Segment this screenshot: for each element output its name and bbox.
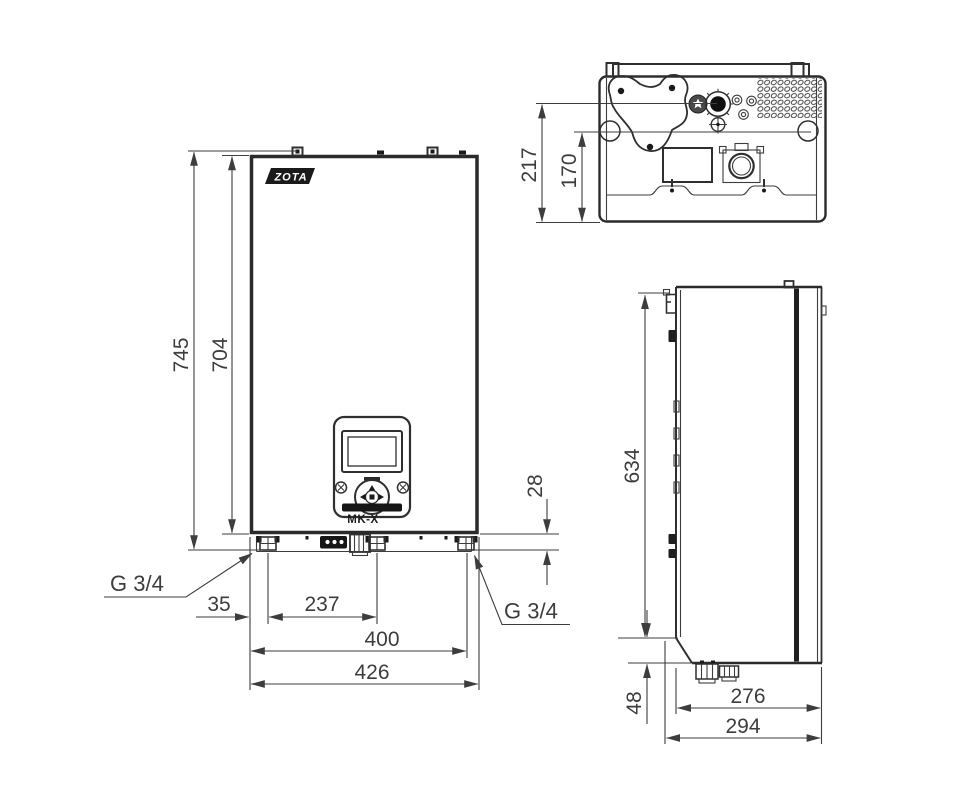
dim-top-depth-to-fasteners: 170	[558, 153, 581, 188]
dpad-up-arrow-icon	[369, 485, 375, 491]
dim-side-overall-depth: 294	[725, 715, 760, 738]
gasket-screw-dot	[618, 88, 624, 94]
dim-front-edge-to-right-connection: 400	[364, 628, 399, 651]
boiler-body-top	[600, 63, 826, 222]
knurled-fastener-right	[798, 121, 818, 141]
front-casing	[252, 157, 478, 533]
dim-front-edge-to-left-connection: 35	[207, 593, 230, 616]
dim-front-overall-height: 745	[170, 337, 193, 372]
dim-side-body-depth: 276	[730, 685, 765, 708]
boiler-body-side	[664, 281, 827, 683]
pipe-fitting-center	[366, 536, 389, 550]
panel-bottom-bar	[342, 504, 402, 512]
brand-logo-text: ZOTA	[273, 172, 307, 184]
dim-front-body-height: 704	[209, 337, 232, 372]
technical-drawing-page: ZOTA	[0, 0, 970, 793]
gasket-screw-dot	[647, 144, 653, 150]
gasket-screw-dot	[669, 85, 675, 91]
small-boss-group	[732, 95, 756, 119]
rear-mounting-rail	[607, 63, 810, 77]
bottom-connection-strip	[257, 535, 478, 556]
top-mounting-tabs	[293, 148, 467, 156]
pipe-fitting-right	[455, 536, 478, 550]
pipe-fitting-left	[257, 536, 280, 550]
side-edge-clips	[669, 330, 680, 558]
crosshair-boss	[709, 116, 727, 134]
cable-terminal-block	[320, 536, 347, 549]
thread-label-right: G 3/4	[504, 599, 558, 624]
side-view: 634 48 276 294	[618, 281, 826, 744]
dim-front-connection-protrusion: 28	[524, 474, 547, 497]
round-connector	[720, 144, 764, 183]
left-screw-icon	[336, 482, 347, 493]
dim-side-height: 634	[621, 448, 644, 483]
dim-front-overall-width: 426	[354, 661, 389, 684]
right-screw-icon	[398, 482, 409, 493]
dim-top-depth-to-connections: 217	[518, 147, 541, 182]
top-view: 217 170	[518, 63, 826, 223]
thread-label-left: G 3/4	[110, 571, 164, 596]
vent-perforation-grid	[757, 78, 822, 118]
boiler-dimension-drawing: ZOTA	[0, 0, 970, 793]
boiler-body-front: ZOTA	[252, 148, 478, 556]
knurled-fastener-left	[600, 121, 620, 141]
terminal-cutout	[663, 148, 712, 182]
cover-plate-gasket	[609, 75, 688, 151]
control-panel	[334, 417, 410, 517]
dim-side-bottom-section: 48	[623, 691, 646, 714]
dpad-right-arrow-icon	[379, 494, 385, 500]
model-label: MK-X	[347, 514, 378, 526]
dpad-left-arrow-icon	[360, 494, 366, 500]
rear-panel-edge	[794, 289, 799, 662]
display-inner	[348, 437, 396, 466]
front-view: ZOTA	[104, 148, 570, 691]
dim-front-left-to-center-connection: 237	[304, 593, 339, 616]
top-dimensions: 217 170	[518, 104, 811, 223]
brand-logo: ZOTA	[265, 168, 315, 184]
